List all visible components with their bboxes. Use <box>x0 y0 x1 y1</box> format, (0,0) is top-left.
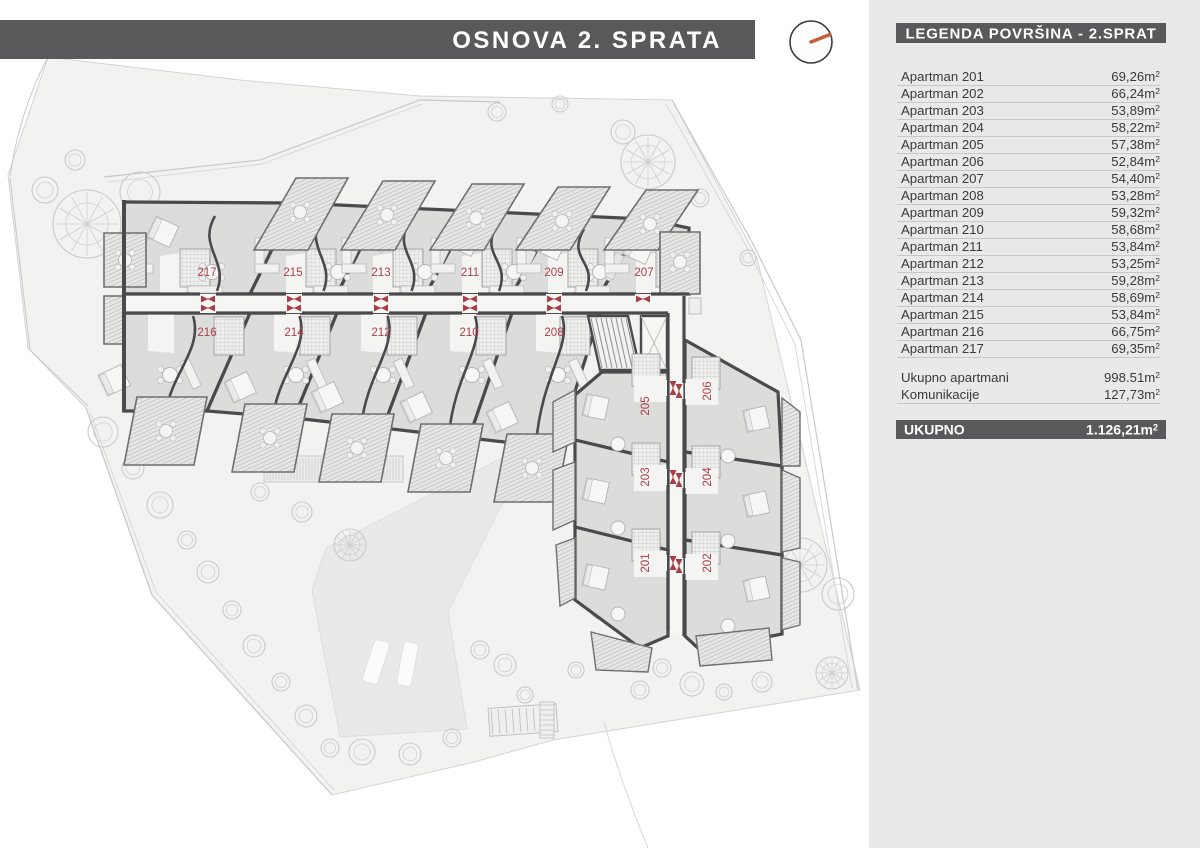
svg-text:Apartman 213: Apartman 213 <box>901 273 984 288</box>
svg-text:Apartman 203: Apartman 203 <box>901 103 984 118</box>
svg-text:UKUPNO: UKUPNO <box>904 422 965 438</box>
svg-text:53,89m2: 53,89m2 <box>1111 103 1160 118</box>
svg-text:Apartman 205: Apartman 205 <box>901 137 984 152</box>
svg-text:59,32m2: 59,32m2 <box>1111 205 1160 220</box>
svg-text:53,28m2: 53,28m2 <box>1111 188 1160 203</box>
svg-text:LEGENDA POVRŠINA - 2.SPRAT: LEGENDA POVRŠINA - 2.SPRAT <box>905 25 1156 43</box>
svg-text:Apartman 217: Apartman 217 <box>901 341 984 356</box>
svg-text:216: 216 <box>197 327 216 339</box>
svg-text:212: 212 <box>371 327 390 339</box>
svg-text:Komunikacije: Komunikacije <box>901 387 979 402</box>
svg-text:53,25m2: 53,25m2 <box>1111 256 1160 271</box>
svg-text:53,84m2: 53,84m2 <box>1111 307 1160 322</box>
svg-text:Apartman 211: Apartman 211 <box>901 239 983 254</box>
svg-text:54,40m2: 54,40m2 <box>1111 171 1160 186</box>
svg-text:201: 201 <box>640 553 652 572</box>
svg-text:59,28m2: 59,28m2 <box>1111 273 1160 288</box>
svg-text:Apartman 215: Apartman 215 <box>901 307 984 322</box>
svg-text:52,84m2: 52,84m2 <box>1111 154 1160 169</box>
svg-text:205: 205 <box>640 396 652 415</box>
svg-text:Apartman 212: Apartman 212 <box>901 256 984 271</box>
svg-text:214: 214 <box>284 327 304 339</box>
svg-text:209: 209 <box>544 267 563 279</box>
svg-text:213: 213 <box>371 267 390 279</box>
svg-text:203: 203 <box>640 467 652 486</box>
svg-text:998.51m2: 998.51m2 <box>1104 370 1160 385</box>
svg-text:53,84m2: 53,84m2 <box>1111 239 1160 254</box>
svg-text:202: 202 <box>702 553 714 572</box>
svg-text:58,69m2: 58,69m2 <box>1111 290 1160 305</box>
svg-text:OSNOVA 2. SPRATA: OSNOVA 2. SPRATA <box>452 27 722 54</box>
svg-text:66,75m2: 66,75m2 <box>1111 324 1160 339</box>
svg-text:Ukupno apartmani: Ukupno apartmani <box>901 370 1009 385</box>
svg-text:Apartman 201: Apartman 201 <box>901 69 984 84</box>
svg-text:Apartman 209: Apartman 209 <box>901 205 984 220</box>
svg-text:215: 215 <box>283 267 302 279</box>
svg-text:Apartman 216: Apartman 216 <box>901 324 984 339</box>
svg-text:Apartman 214: Apartman 214 <box>901 290 984 305</box>
svg-text:58,22m2: 58,22m2 <box>1111 120 1160 135</box>
svg-text:Apartman 210: Apartman 210 <box>901 222 984 237</box>
svg-text:217: 217 <box>197 267 216 279</box>
svg-text:206: 206 <box>702 381 714 400</box>
svg-text:Apartman 208: Apartman 208 <box>901 188 984 203</box>
svg-text:208: 208 <box>544 327 563 339</box>
svg-text:Apartman 204: Apartman 204 <box>901 120 984 135</box>
svg-text:58,68m2: 58,68m2 <box>1111 222 1160 237</box>
svg-text:1.126,21m2: 1.126,21m2 <box>1086 422 1158 438</box>
svg-text:69,35m2: 69,35m2 <box>1111 341 1160 356</box>
svg-text:57,38m2: 57,38m2 <box>1111 137 1160 152</box>
svg-text:207: 207 <box>634 267 653 279</box>
svg-text:204: 204 <box>702 467 714 487</box>
svg-text:Apartman 202: Apartman 202 <box>901 86 984 101</box>
svg-text:Apartman 207: Apartman 207 <box>901 171 984 186</box>
svg-text:69,26m2: 69,26m2 <box>1111 69 1160 84</box>
svg-text:211: 211 <box>461 267 479 279</box>
svg-text:66,24m2: 66,24m2 <box>1111 86 1160 101</box>
svg-text:Apartman 206: Apartman 206 <box>901 154 984 169</box>
svg-text:210: 210 <box>459 327 478 339</box>
svg-text:127,73m2: 127,73m2 <box>1104 387 1160 402</box>
